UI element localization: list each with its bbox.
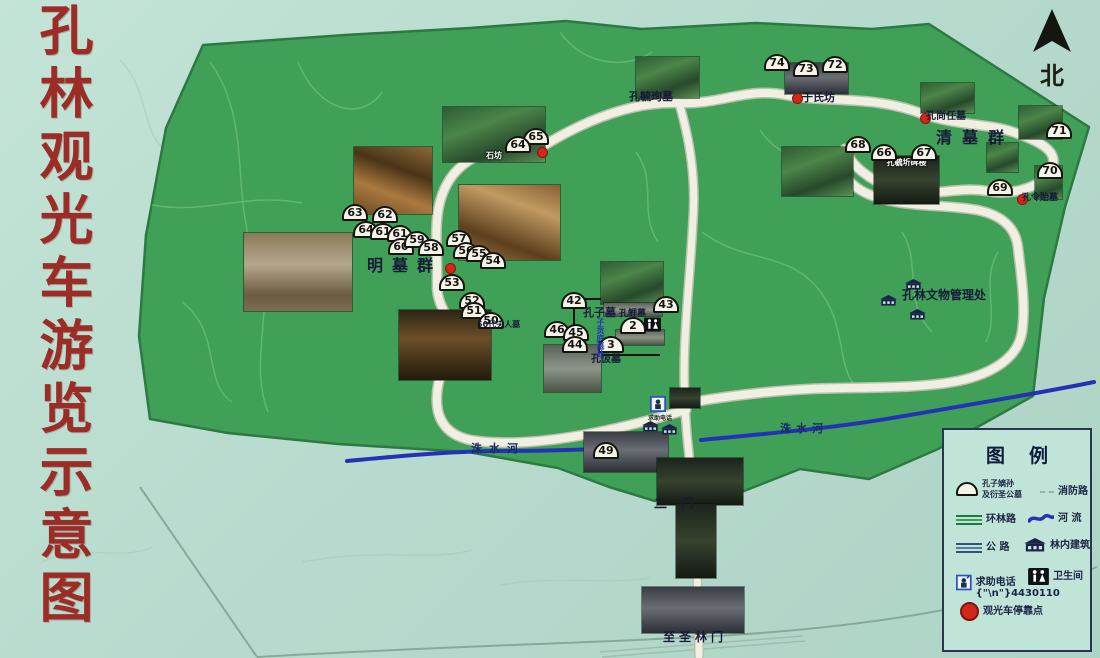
legend-item-fire-road: 消防路 bbox=[1040, 486, 1088, 497]
legend-item-wc: 卫生间 bbox=[1028, 568, 1083, 585]
legend-item-building: 林内建筑 bbox=[1024, 538, 1090, 552]
photo-ming-statues bbox=[244, 233, 352, 311]
route-marker-68: 68 bbox=[845, 136, 871, 153]
route-marker-number: 64 bbox=[510, 139, 525, 151]
route-marker-number: 70 bbox=[1042, 165, 1057, 177]
route-marker-71: 71 bbox=[1046, 122, 1072, 139]
map-label-zhisheng-forest-gate: 至圣林门 bbox=[663, 628, 727, 645]
photo-qing-trees bbox=[782, 147, 853, 196]
legend-panel: 图例 孔子嫡孙 及衍圣公墓 消防路 环林路 河 流 公 路 林内建筑 bbox=[942, 428, 1092, 652]
route-marker-53: 53 bbox=[439, 274, 465, 291]
route-marker-number: 69 bbox=[992, 182, 1007, 194]
route-marker-number: 71 bbox=[1051, 125, 1066, 137]
route-marker-69: 69 bbox=[987, 179, 1013, 196]
restroom-icon bbox=[1028, 568, 1049, 585]
route-marker-number: 72 bbox=[827, 59, 842, 71]
legend-label: 公 路 bbox=[986, 542, 1009, 553]
restroom-icon bbox=[644, 317, 661, 336]
photo-stele-pavilion: 孔毓圻碑楼 bbox=[874, 156, 939, 204]
legend-label: 卫生间 bbox=[1053, 571, 1083, 582]
ring-road-icon bbox=[956, 515, 982, 525]
route-marker-number: 67 bbox=[916, 147, 931, 159]
route-marker-70: 70 bbox=[1037, 162, 1063, 179]
building-icon bbox=[1024, 538, 1046, 552]
photo-junction-photo bbox=[670, 388, 700, 408]
route-marker-number: 49 bbox=[598, 445, 613, 457]
legend-label: 环林路 bbox=[986, 514, 1016, 525]
legend-label: 消防路 bbox=[1058, 486, 1088, 497]
map-label-help-phone-note: 求助电话 bbox=[648, 413, 672, 422]
map-label-qing-tomb-group: 清墓群 bbox=[936, 124, 1014, 148]
tour-map-sign: 石坊孔毓圻碑楼747372656468666771706963626461616… bbox=[0, 0, 1100, 658]
route-marker-number: 43 bbox=[658, 299, 673, 311]
map-label-second-gate: 二门 bbox=[654, 493, 708, 512]
tomb-dome-icon bbox=[956, 482, 978, 496]
river-icon bbox=[1028, 512, 1054, 525]
map-label-kongli-tomb: 孔鲤墓 bbox=[619, 306, 646, 319]
photo-zhishenglin-gate-photo bbox=[642, 587, 744, 633]
help-phone-number: 4430110 bbox=[1011, 588, 1060, 599]
fire-road-icon bbox=[1040, 491, 1054, 493]
legend-item-descendant-tombs: 孔子嫡孙 及衍圣公墓 bbox=[956, 478, 1022, 500]
route-marker-74: 74 bbox=[764, 54, 790, 71]
route-marker-number: 2 bbox=[629, 320, 637, 332]
house-icon bbox=[909, 305, 926, 324]
map-label-zhushui-river-east: 洙水河 bbox=[780, 420, 828, 436]
map-label-relics-admin-office: 孔林文物管理处 bbox=[902, 286, 986, 303]
legend-label: 河 流 bbox=[1058, 513, 1081, 524]
legend-item-ring-road: 环林路 bbox=[956, 514, 1016, 525]
legend-label: 观光车停靠点 bbox=[983, 606, 1043, 617]
route-marker-number: 42 bbox=[566, 295, 581, 307]
legend-item-cart-stop: 观光车停靠点 bbox=[960, 602, 1043, 621]
route-marker-number: 73 bbox=[798, 63, 813, 75]
map-label-yushifang: 于氏坊 bbox=[802, 89, 835, 105]
house-icon bbox=[661, 420, 678, 439]
route-marker-67: 67 bbox=[911, 144, 937, 161]
highway-icon bbox=[956, 543, 982, 553]
route-marker-2: 2 bbox=[620, 317, 646, 334]
stop-shifang bbox=[537, 147, 548, 158]
route-marker-number: 65 bbox=[528, 131, 543, 143]
legend-label: 孔子嫡孙 及衍圣公墓 bbox=[982, 478, 1022, 500]
stop-ming-tombs bbox=[445, 263, 456, 274]
map-label-kongyuxun-tomb: 孔毓珣墓 bbox=[629, 88, 673, 104]
legend-label: 林内建筑 bbox=[1050, 540, 1090, 551]
photo-axis-strip bbox=[676, 504, 716, 578]
route-marker-number: 74 bbox=[769, 57, 784, 69]
route-marker-number: 68 bbox=[850, 139, 865, 151]
north-label: 北 bbox=[1040, 56, 1064, 91]
legend-title: 图例 bbox=[944, 441, 1090, 468]
map-label-konglingyi-tomb: 孔令贻墓 bbox=[1022, 190, 1058, 203]
cart-stop-icon bbox=[960, 602, 979, 621]
map-label-zhushui-river-west: 洙水河 bbox=[471, 440, 525, 456]
route-marker-number: 51 bbox=[466, 305, 481, 317]
route-marker-number: 53 bbox=[444, 277, 459, 289]
map-layer: 石坊孔毓圻碑楼747372656468666771706963626461616… bbox=[0, 0, 1100, 658]
route-marker-66: 66 bbox=[871, 144, 897, 161]
map-label-kongshangren-tomb: 孔尚任墓 bbox=[926, 107, 966, 122]
map-label-zigong-mourning-hut: 子贡庐墓处 bbox=[595, 318, 606, 358]
map-label-ming-tomb-group: 明墓群 bbox=[367, 252, 442, 276]
route-marker-number: 63 bbox=[347, 207, 362, 219]
photo-stone-arch bbox=[354, 147, 432, 214]
house-icon bbox=[880, 291, 897, 310]
phone-icon bbox=[956, 574, 972, 591]
route-marker-number: 44 bbox=[567, 339, 582, 351]
photo-kongzi-trees bbox=[601, 262, 663, 304]
route-marker-number: 62 bbox=[377, 209, 392, 221]
route-marker-43: 43 bbox=[653, 296, 679, 313]
map-title: 孔林观光车游览示意图 bbox=[14, 2, 110, 656]
legend-item-river: 河 流 bbox=[1028, 512, 1081, 525]
route-marker-number: 66 bbox=[876, 147, 891, 159]
route-marker-72: 72 bbox=[822, 56, 848, 73]
route-marker-number: 54 bbox=[485, 255, 500, 267]
legend-item-highway: 公 路 bbox=[956, 542, 1009, 553]
map-label-madam-50th-tomb: 50代夫人墓 bbox=[477, 319, 520, 330]
